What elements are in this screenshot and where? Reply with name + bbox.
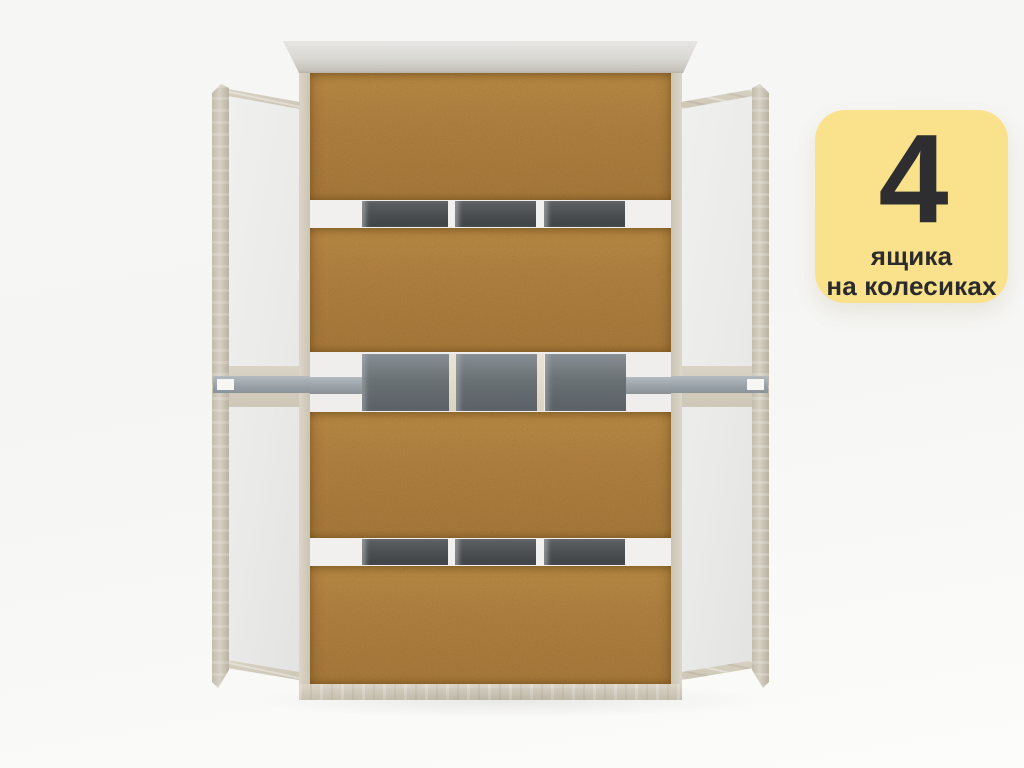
drawer-bottom-panel-3 — [310, 412, 671, 538]
rail-slot-left — [217, 379, 234, 390]
product-image: 4 ящика на колесиках — [0, 0, 1024, 768]
drawer-rail-segment — [310, 377, 362, 394]
rail-slot-right — [747, 379, 764, 390]
metal-slat — [455, 201, 536, 227]
center-beam-slat — [545, 354, 626, 411]
headboard — [283, 41, 698, 73]
metal-slat — [455, 539, 536, 565]
beam-divider — [449, 354, 456, 411]
center-beam-slat — [456, 354, 537, 411]
floor-shadow — [250, 688, 770, 718]
metal-slat — [544, 539, 625, 565]
metal-slat — [362, 201, 448, 227]
drawer-rail-segment — [626, 377, 671, 394]
feature-badge: 4 ящика на колесиках — [815, 110, 1008, 303]
drawer-bottom-panel-2 — [310, 228, 671, 352]
badge-caption-line2: на колесиках — [826, 272, 996, 302]
drawer-bottom-panel-1 — [310, 73, 671, 200]
center-beam-slat — [362, 354, 449, 411]
slat-gap-upper — [310, 200, 671, 228]
badge-number: 4 — [878, 116, 944, 242]
slat-gap-lower — [310, 538, 671, 566]
metal-slat — [362, 539, 448, 565]
metal-slat — [544, 201, 625, 227]
center-beam-band — [310, 352, 671, 412]
drawer-bottom-panel-4 — [310, 566, 671, 684]
beam-divider — [537, 354, 544, 411]
badge-caption-line1: ящика — [871, 242, 953, 272]
